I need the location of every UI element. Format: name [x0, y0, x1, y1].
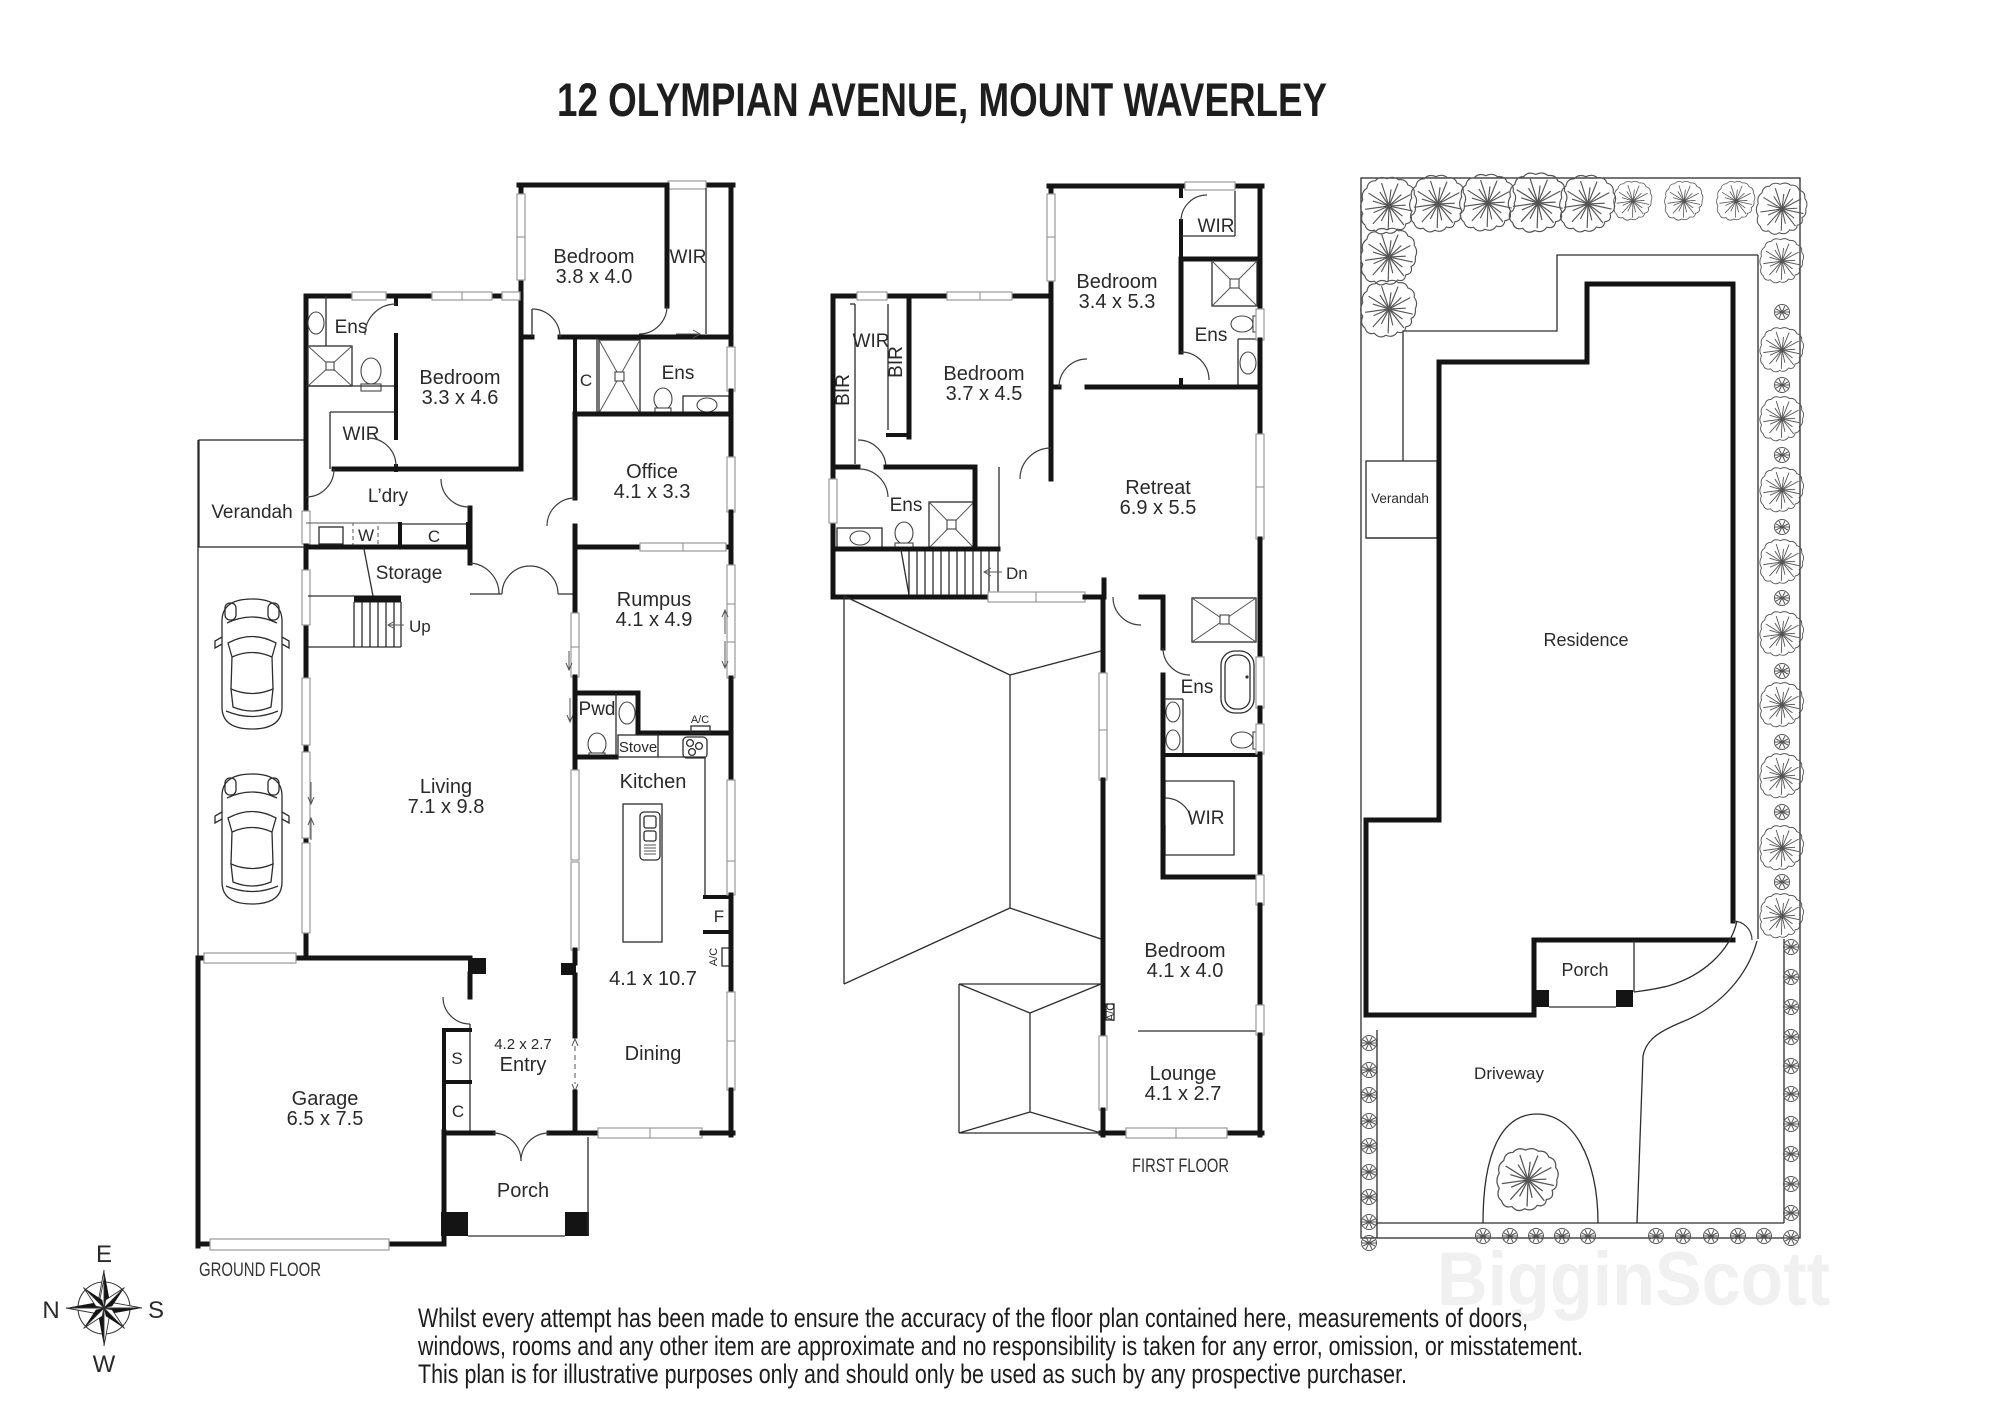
- svg-text:Residence: Residence: [1543, 630, 1628, 650]
- svg-text:4.2 x 2.7: 4.2 x 2.7: [494, 1036, 552, 1053]
- svg-text:E: E: [96, 1241, 112, 1268]
- svg-text:Kitchen: Kitchen: [620, 771, 687, 793]
- svg-text:Bedroom: Bedroom: [943, 363, 1024, 385]
- svg-text:3.4 x 5.3: 3.4 x 5.3: [1079, 291, 1156, 313]
- svg-text:This plan is for illustrative: This plan is for illustrative purposes o…: [418, 1359, 1407, 1389]
- svg-text:WIR: WIR: [343, 424, 380, 445]
- svg-text:C: C: [452, 1102, 464, 1121]
- svg-text:Porch: Porch: [497, 1180, 549, 1202]
- svg-text:4.1 x 4.0: 4.1 x 4.0: [1147, 960, 1224, 982]
- svg-text:Pwd: Pwd: [579, 699, 616, 720]
- svg-text:Whilst every attempt has been: Whilst every attempt has been made to en…: [418, 1303, 1528, 1333]
- svg-text:BIR: BIR: [886, 346, 907, 378]
- svg-text:Bedroom: Bedroom: [1144, 940, 1225, 962]
- svg-text:3.8 x 4.0: 3.8 x 4.0: [556, 266, 633, 288]
- svg-text:3.3 x 4.6: 3.3 x 4.6: [422, 387, 499, 409]
- svg-text:Verandah: Verandah: [1371, 491, 1429, 506]
- svg-text:N: N: [42, 1297, 59, 1324]
- svg-text:L’dry: L’dry: [368, 486, 409, 507]
- svg-text:WIR: WIR: [670, 247, 707, 268]
- svg-text:C: C: [580, 371, 592, 390]
- svg-text:A/C: A/C: [708, 948, 720, 966]
- svg-text:Porch: Porch: [1561, 960, 1608, 980]
- svg-text:S: S: [451, 1049, 462, 1068]
- svg-text:W: W: [358, 526, 374, 545]
- svg-text:Up: Up: [409, 617, 431, 636]
- svg-text:Bedroom: Bedroom: [419, 367, 500, 389]
- svg-text:Retreat: Retreat: [1125, 477, 1191, 499]
- svg-text:GROUND FLOOR: GROUND FLOOR: [199, 1260, 321, 1281]
- svg-text:Storage: Storage: [376, 563, 443, 584]
- svg-text:Ens: Ens: [1181, 677, 1214, 698]
- svg-text:F: F: [714, 907, 724, 926]
- svg-text:Ens: Ens: [1195, 325, 1228, 346]
- svg-text:WIR: WIR: [853, 331, 890, 352]
- svg-text:Entry: Entry: [500, 1054, 547, 1076]
- svg-text:3.7 x 4.5: 3.7 x 4.5: [946, 383, 1023, 405]
- svg-text:Rumpus: Rumpus: [617, 589, 691, 611]
- svg-text:W: W: [93, 1351, 116, 1378]
- svg-text:WIR: WIR: [1198, 216, 1235, 237]
- svg-text:A/C: A/C: [1105, 1003, 1117, 1021]
- svg-text:A/C: A/C: [691, 714, 709, 726]
- svg-text:4.1 x 3.3: 4.1 x 3.3: [614, 481, 691, 503]
- svg-text:WIR: WIR: [1188, 808, 1225, 829]
- svg-text:4.1 x 4.9: 4.1 x 4.9: [616, 609, 693, 631]
- svg-text:Ens: Ens: [662, 363, 695, 384]
- svg-text:Driveway: Driveway: [1474, 1064, 1544, 1083]
- svg-text:windows, rooms and any other i: windows, rooms and any other item are ap…: [417, 1331, 1583, 1361]
- svg-text:Ens: Ens: [335, 317, 368, 338]
- svg-text:Garage: Garage: [292, 1088, 359, 1110]
- svg-text:Verandah: Verandah: [211, 502, 292, 523]
- svg-text:4.1 x 2.7: 4.1 x 2.7: [1145, 1083, 1222, 1105]
- svg-text:C: C: [428, 527, 440, 546]
- svg-text:BIR: BIR: [833, 374, 854, 406]
- svg-text:6.9 x 5.5: 6.9 x 5.5: [1120, 497, 1197, 519]
- svg-text:Living: Living: [420, 776, 472, 798]
- svg-text:4.1 x 10.7: 4.1 x 10.7: [609, 968, 697, 990]
- svg-text:Lounge: Lounge: [1150, 1063, 1217, 1085]
- svg-text:Ens: Ens: [890, 495, 923, 516]
- svg-text:Bedroom: Bedroom: [553, 246, 634, 268]
- svg-text:S: S: [148, 1297, 164, 1324]
- svg-text:Office: Office: [626, 461, 678, 483]
- svg-text:FIRST FLOOR: FIRST FLOOR: [1132, 1156, 1229, 1177]
- svg-text:Dn: Dn: [1006, 564, 1028, 583]
- svg-text:Stove: Stove: [619, 739, 657, 756]
- svg-text:12 OLYMPIAN AVENUE, MOUNT WAVE: 12 OLYMPIAN AVENUE, MOUNT WAVERLEY: [557, 73, 1327, 126]
- svg-text:Dining: Dining: [625, 1043, 682, 1065]
- svg-text:7.1 x 9.8: 7.1 x 9.8: [408, 796, 485, 818]
- svg-text:Bedroom: Bedroom: [1076, 271, 1157, 293]
- svg-text:6.5 x 7.5: 6.5 x 7.5: [287, 1108, 364, 1130]
